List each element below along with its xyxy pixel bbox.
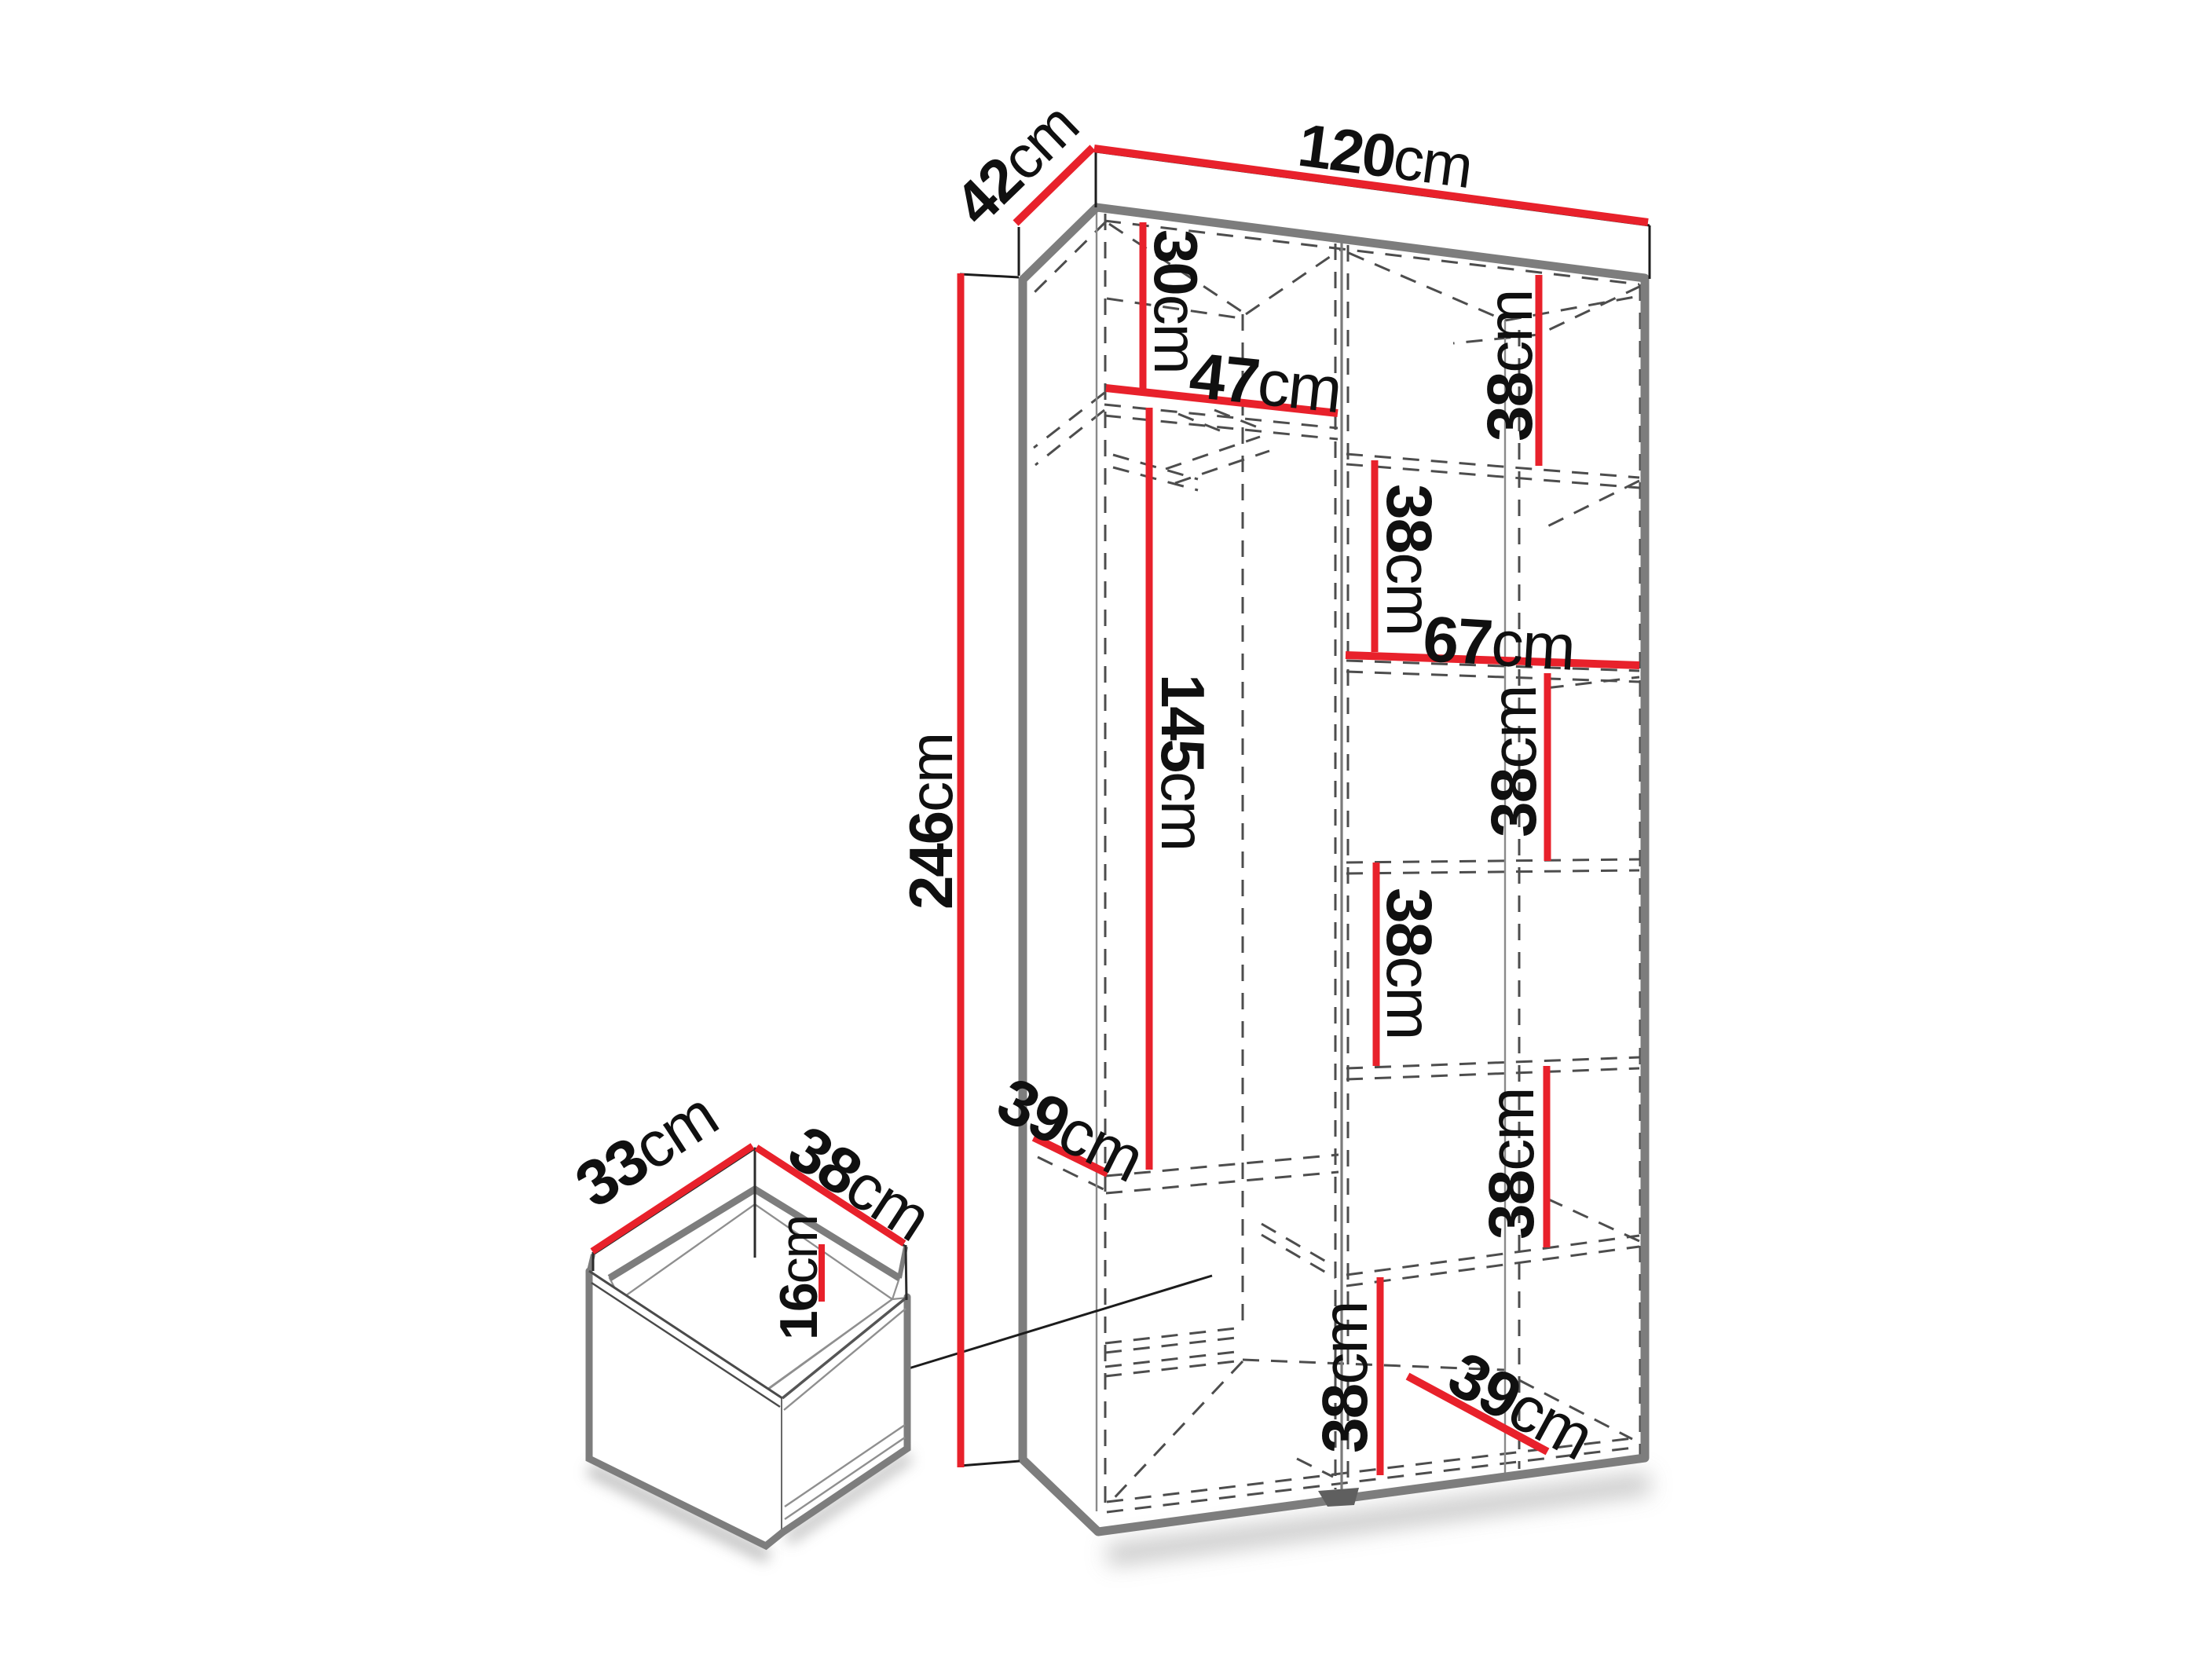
svg-text:145cm: 145cm [1148, 674, 1218, 850]
svg-text:16cm: 16cm [769, 1216, 829, 1340]
svg-text:38cm: 38cm [1474, 290, 1546, 441]
svg-text:38cm: 38cm [1476, 1088, 1547, 1240]
svg-text:38cm: 38cm [1478, 686, 1550, 837]
svg-text:38cm: 38cm [1309, 1302, 1381, 1453]
svg-text:246cm: 246cm [896, 734, 965, 910]
svg-text:38cm: 38cm [1373, 888, 1445, 1039]
svg-text:67cm: 67cm [1421, 603, 1577, 684]
